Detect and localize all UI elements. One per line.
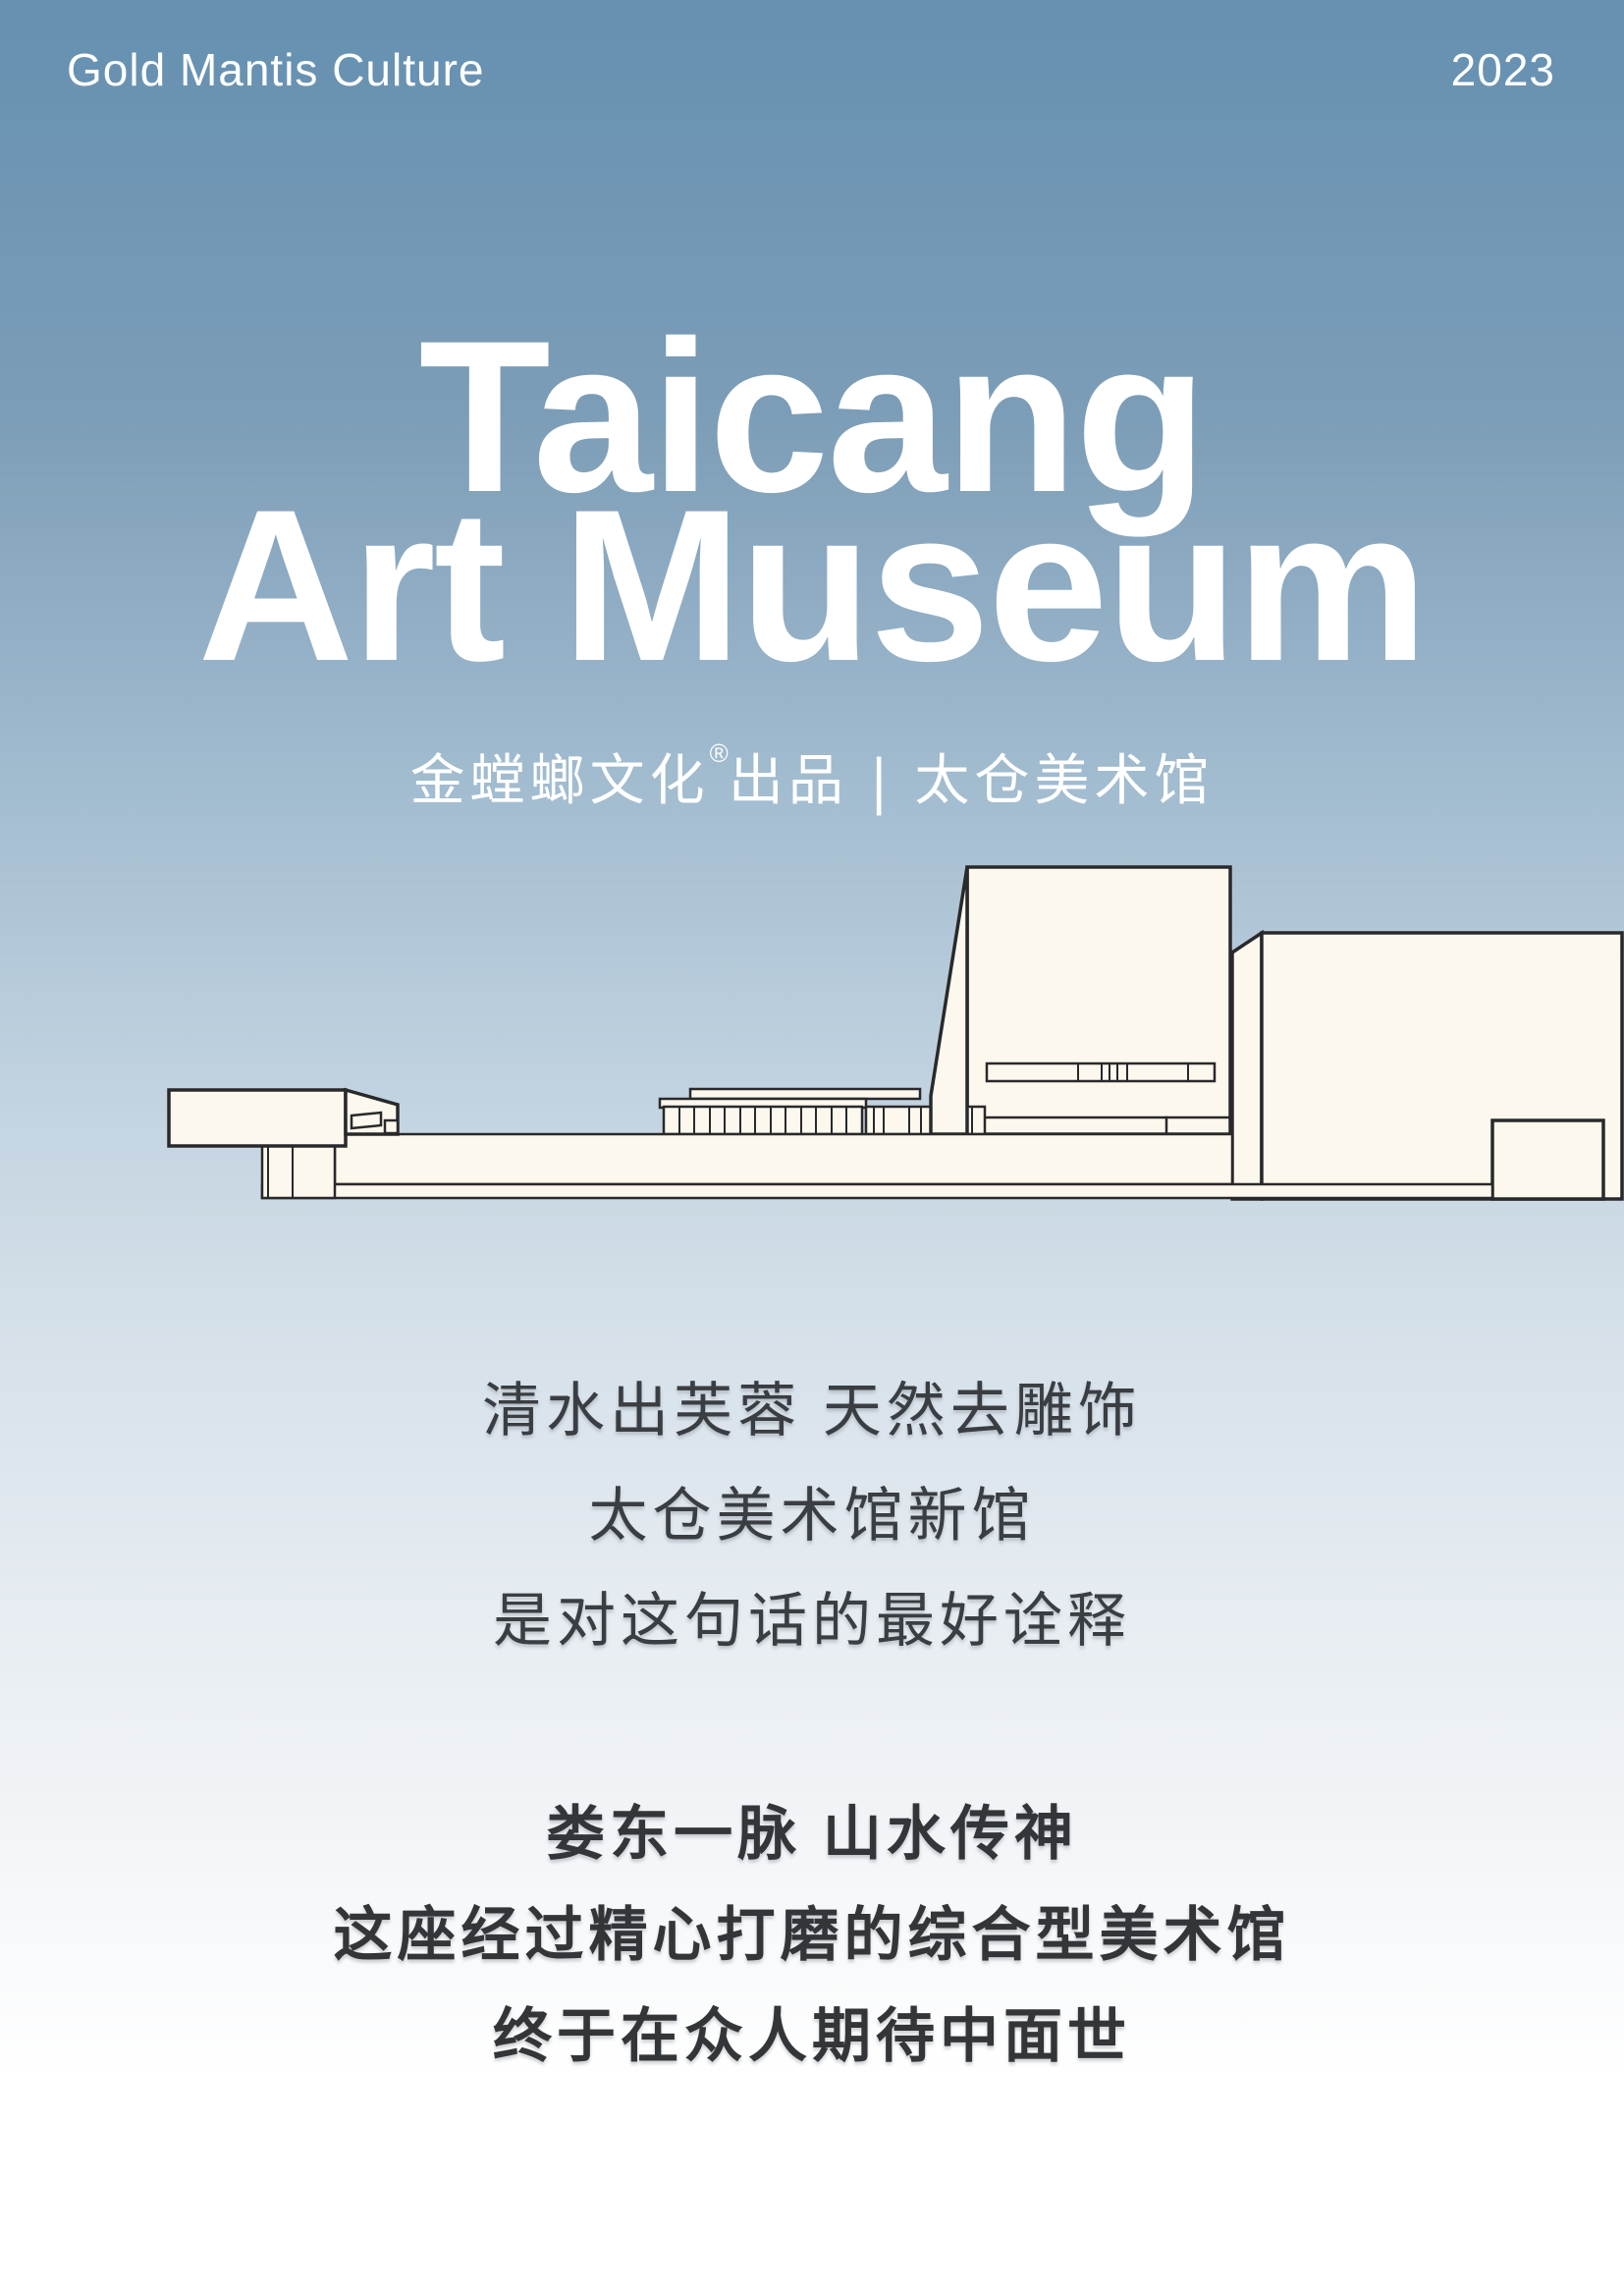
intro-line-3: 是对这句话的最好诠释 <box>0 1568 1624 1673</box>
plaza-lower-base <box>262 1184 1492 1198</box>
subtitle: 金螳螂文化®出品|太仓美术馆 <box>0 739 1624 811</box>
page-title: Taicang Art Museum <box>0 332 1624 670</box>
brand-name: Gold Mantis Culture <box>67 43 485 96</box>
outro-line-1: 娄东一脉 山水传神 <box>0 1783 1624 1884</box>
registered-mark-icon: ® <box>710 738 729 768</box>
subtitle-divider: | <box>872 745 892 815</box>
museum-line-drawing <box>0 843 1624 1216</box>
left-wing-small-window <box>385 1120 398 1133</box>
right-wing-side-face <box>1232 933 1262 1199</box>
year-label: 2023 <box>1451 43 1555 96</box>
outro-line-3: 终于在众人期待中面世 <box>0 1986 1624 2087</box>
subtitle-museum: 太仓美术馆 <box>914 749 1214 811</box>
left-wing-window <box>352 1113 381 1128</box>
top-bar: Gold Mantis Culture 2023 <box>67 43 1555 96</box>
outro-line-2: 这座经过精心打磨的综合型美术馆 <box>0 1884 1624 1986</box>
subtitle-suffix: 出品 <box>729 749 848 811</box>
intro-line-1: 清水出芙蓉 天然去雕饰 <box>0 1358 1624 1463</box>
outro-text-block: 娄东一脉 山水传神 这座经过精心打磨的综合型美术馆 终于在众人期待中面世 <box>0 1783 1624 2087</box>
colonnade-upper-roof <box>690 1089 920 1099</box>
title-line-2: Art Museum <box>0 501 1624 670</box>
intro-text-block: 清水出芙蓉 天然去雕饰 太仓美术馆新馆 是对这句话的最好诠释 <box>0 1358 1624 1673</box>
plaza-slab <box>335 1134 1232 1184</box>
poster-page: Gold Mantis Culture 2023 Taicang Art Mus… <box>0 0 1624 2287</box>
intro-line-2: 太仓美术馆新馆 <box>0 1463 1624 1568</box>
museum-building-illustration <box>0 843 1624 1216</box>
subtitle-producer: 金螳螂文化 <box>410 749 710 811</box>
tower-side-face <box>931 867 967 1134</box>
left-step-block <box>262 1146 335 1198</box>
right-wing-annex-box <box>1492 1120 1603 1199</box>
tower-main-face <box>967 867 1230 1134</box>
left-wing-main-face <box>169 1090 346 1146</box>
